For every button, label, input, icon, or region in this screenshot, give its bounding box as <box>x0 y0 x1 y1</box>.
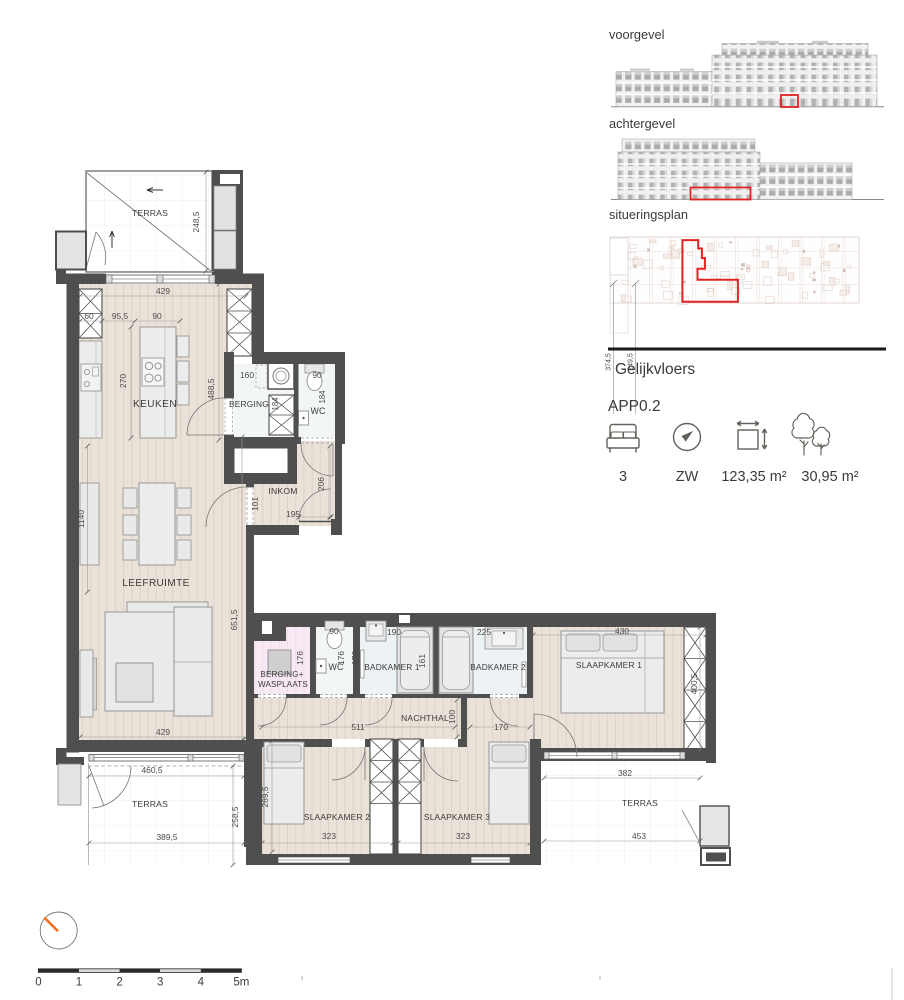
svg-text:184: 184 <box>271 397 280 411</box>
svg-text:190: 190 <box>387 627 401 637</box>
svg-text:WASPLAATS: WASPLAATS <box>258 680 308 689</box>
svg-text:BADKAMER 1: BADKAMER 1 <box>364 662 420 672</box>
svg-text:3: 3 <box>157 977 163 989</box>
svg-text:374,5: 374,5 <box>606 353 613 371</box>
svg-text:3: 3 <box>619 469 627 485</box>
svg-text:100: 100 <box>447 710 457 724</box>
svg-text:4: 4 <box>198 977 205 989</box>
svg-text:453: 453 <box>632 831 646 841</box>
svg-text:ZW: ZW <box>676 469 699 485</box>
svg-text:1: 1 <box>76 977 82 989</box>
svg-text:206: 206 <box>316 477 326 491</box>
svg-text:430: 430 <box>615 626 629 636</box>
svg-text:2: 2 <box>116 977 122 989</box>
svg-text:TERRAS: TERRAS <box>622 798 658 808</box>
svg-text:160: 160 <box>240 370 254 380</box>
svg-text:90: 90 <box>152 311 162 321</box>
svg-text:225: 225 <box>477 627 491 637</box>
svg-text:429: 429 <box>156 727 170 737</box>
svg-text:WC: WC <box>310 406 326 416</box>
svg-text:170: 170 <box>494 722 508 732</box>
svg-text:achtergevel: achtergevel <box>609 116 675 131</box>
svg-text:176: 176 <box>336 651 346 665</box>
svg-text:5m: 5m <box>233 977 249 989</box>
svg-text:voorgevel: voorgevel <box>609 27 665 42</box>
svg-text:situeringsplan: situeringsplan <box>609 207 688 222</box>
svg-text:90: 90 <box>329 626 339 636</box>
svg-text:BERGING+: BERGING+ <box>260 670 303 679</box>
svg-text:195: 195 <box>286 509 300 519</box>
svg-text:511: 511 <box>351 722 365 732</box>
svg-text:60: 60 <box>84 311 94 321</box>
svg-text:269,5: 269,5 <box>260 786 270 807</box>
svg-text:SLAAPKAMER 3: SLAAPKAMER 3 <box>424 812 490 822</box>
svg-text:1140: 1140 <box>76 510 86 528</box>
svg-text:APP0.2: APP0.2 <box>608 398 661 415</box>
svg-text:382: 382 <box>618 768 632 778</box>
svg-text:Gelijkvloers: Gelijkvloers <box>615 361 695 378</box>
svg-text:488,5: 488,5 <box>206 378 216 399</box>
svg-text:400,5: 400,5 <box>689 673 699 694</box>
svg-text:0: 0 <box>35 977 41 989</box>
svg-text:123,35 m²: 123,35 m² <box>721 469 786 485</box>
svg-text:258,5: 258,5 <box>230 806 240 827</box>
svg-text:176: 176 <box>350 651 360 665</box>
svg-text:270: 270 <box>118 374 128 388</box>
svg-text:BERGING: BERGING <box>229 399 269 409</box>
svg-text:INKOM: INKOM <box>268 486 297 496</box>
svg-text:389,5: 389,5 <box>157 832 178 842</box>
svg-text:101: 101 <box>250 497 260 511</box>
svg-text:NACHTHAL: NACHTHAL <box>401 713 449 723</box>
svg-text:161: 161 <box>417 654 427 668</box>
svg-text:323: 323 <box>322 831 336 841</box>
svg-text:323: 323 <box>456 831 470 841</box>
svg-text:BADKAMER 2: BADKAMER 2 <box>470 662 526 672</box>
svg-text:429: 429 <box>156 286 170 296</box>
svg-text:184: 184 <box>318 390 327 404</box>
svg-text:LEEFRUIMTE: LEEFRUIMTE <box>122 578 189 589</box>
svg-text:TERRAS: TERRAS <box>132 799 168 809</box>
svg-text:90: 90 <box>312 370 322 380</box>
svg-text:95,5: 95,5 <box>112 311 129 321</box>
svg-text:460,5: 460,5 <box>142 765 163 775</box>
svg-text:651,5: 651,5 <box>229 609 239 630</box>
svg-text:TERRAS: TERRAS <box>132 208 168 218</box>
svg-text:248,5: 248,5 <box>191 211 201 232</box>
svg-text:KEUKEN: KEUKEN <box>133 399 177 410</box>
svg-text:30,95 m²: 30,95 m² <box>801 469 858 485</box>
svg-text:SLAAPKAMER 2: SLAAPKAMER 2 <box>304 812 370 822</box>
svg-text:SLAAPKAMER 1: SLAAPKAMER 1 <box>576 660 642 670</box>
svg-text:176: 176 <box>295 651 305 665</box>
